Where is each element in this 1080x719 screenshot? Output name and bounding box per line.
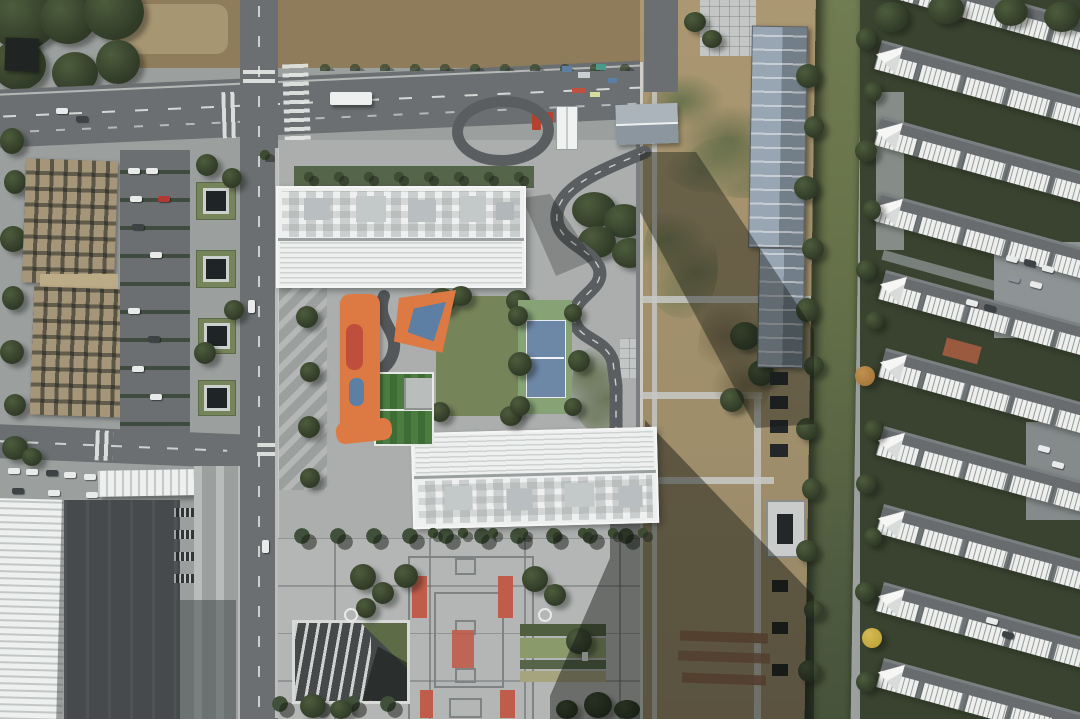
main-road-west-vertical xyxy=(240,0,278,719)
tree xyxy=(222,168,242,188)
bank-tree xyxy=(796,298,818,322)
white-hall-roof xyxy=(0,498,68,719)
gatehouse-roof xyxy=(615,103,678,145)
car xyxy=(56,108,68,114)
construction-debris xyxy=(596,64,606,70)
statue-white xyxy=(582,652,588,661)
car xyxy=(128,168,140,174)
tree xyxy=(522,566,548,592)
bank-tree xyxy=(796,64,820,88)
car xyxy=(48,490,60,496)
wall-opening xyxy=(770,396,788,409)
tree xyxy=(566,628,592,654)
rooftop-unit xyxy=(444,486,473,511)
playground-red-patch xyxy=(346,324,363,370)
tree xyxy=(578,226,616,258)
bus-shelter xyxy=(330,92,372,105)
car xyxy=(130,196,142,202)
construction-debris xyxy=(578,72,590,78)
bank-bush-orange xyxy=(855,366,875,386)
wall-opening xyxy=(770,444,788,457)
bank-tree xyxy=(794,176,818,200)
bank-tree xyxy=(798,660,820,682)
tree xyxy=(556,700,578,719)
south-school-building xyxy=(411,427,659,529)
construction-debris xyxy=(572,88,586,93)
bank-tree xyxy=(863,200,881,220)
tree xyxy=(510,396,530,416)
plaza-pattern-square xyxy=(455,558,476,575)
tree xyxy=(300,468,320,488)
tree xyxy=(356,598,376,618)
tree xyxy=(96,40,140,84)
bank-tree xyxy=(796,540,818,562)
skylight-pit xyxy=(204,385,230,411)
crosswalk xyxy=(95,430,114,461)
rooftop-unit xyxy=(304,198,330,220)
tree xyxy=(300,694,326,718)
bank-tree xyxy=(864,528,882,546)
tree xyxy=(584,692,612,718)
wall-opening xyxy=(770,372,788,385)
plaza-red-band xyxy=(498,576,513,618)
tree xyxy=(1044,2,1080,32)
rooftop-unit xyxy=(408,200,436,222)
tree xyxy=(2,286,24,310)
tree xyxy=(730,322,760,350)
tennis-net-line xyxy=(526,357,564,359)
louvered-terrace-zone xyxy=(415,431,654,475)
north-school-building xyxy=(276,186,526,288)
bank-tree xyxy=(864,82,882,102)
tree xyxy=(614,700,640,719)
concrete-path-vertical xyxy=(754,396,761,719)
bank-tree xyxy=(804,356,824,376)
bank-tree xyxy=(802,478,822,500)
demolished-building-south-wing xyxy=(30,286,128,417)
tree xyxy=(372,582,394,604)
plaza-pattern-square xyxy=(449,698,482,718)
bank-tree xyxy=(865,312,883,330)
car xyxy=(146,168,158,174)
skylight-pit xyxy=(203,256,229,282)
tree xyxy=(720,388,744,412)
tree xyxy=(564,304,582,322)
tree xyxy=(196,154,218,176)
bank-tree xyxy=(802,238,824,260)
road-stub-north xyxy=(644,0,678,92)
lane-dashes-vertical xyxy=(258,6,260,713)
box-pit xyxy=(777,514,793,544)
tree xyxy=(224,300,244,320)
ridge-line xyxy=(616,122,678,126)
wall-opening xyxy=(770,420,788,433)
tree xyxy=(0,340,24,364)
street-shrub-row xyxy=(310,58,640,71)
demolished-building-north-wing xyxy=(22,158,118,285)
car xyxy=(8,468,20,474)
wall-opening xyxy=(772,622,788,634)
plaza-red-center xyxy=(452,630,474,668)
car xyxy=(86,492,98,498)
plaza-lamp-ring xyxy=(344,608,358,622)
tree xyxy=(508,352,532,376)
plaza-garden-strips xyxy=(520,624,606,682)
tree xyxy=(394,564,418,588)
tent-ridge xyxy=(566,107,568,149)
crosswalk xyxy=(221,92,239,139)
north-hedge xyxy=(294,166,534,188)
west-parking-lot xyxy=(120,150,190,450)
bank-tree xyxy=(855,582,875,602)
construction-wall xyxy=(640,62,643,719)
car xyxy=(76,116,88,122)
plaza-lamp-ring xyxy=(538,608,552,622)
tree-planter xyxy=(196,250,236,288)
tree xyxy=(544,584,566,606)
canal-shed-north xyxy=(748,26,808,249)
hedge-strip xyxy=(520,660,606,669)
tree xyxy=(296,306,318,328)
tree-planter xyxy=(198,380,236,416)
bank-bush-yellow xyxy=(862,628,882,648)
construction-tent xyxy=(556,106,578,150)
construction-debris xyxy=(608,78,617,83)
car xyxy=(150,394,162,400)
car xyxy=(150,252,162,258)
rooftop-unit xyxy=(618,485,643,508)
tree xyxy=(4,394,26,416)
bank-tree xyxy=(856,260,876,280)
tree xyxy=(22,448,42,466)
rooftop-unit xyxy=(496,202,514,220)
bank-tree xyxy=(856,474,876,494)
dark-service-yard xyxy=(64,500,180,719)
dry-lawn-strip xyxy=(520,671,606,682)
tree xyxy=(508,306,528,326)
car-on-road xyxy=(248,300,255,313)
bank-tree xyxy=(856,28,876,50)
tree xyxy=(0,128,24,154)
skylight-pit xyxy=(203,188,229,214)
car xyxy=(132,366,144,372)
tree xyxy=(564,398,582,416)
car xyxy=(64,472,76,478)
tree xyxy=(350,564,376,590)
car xyxy=(12,488,24,494)
playground-blue-patch xyxy=(349,378,364,406)
bank-tree xyxy=(864,420,882,440)
rooftop-unit xyxy=(564,482,595,507)
tree xyxy=(194,342,216,364)
lawn-strip xyxy=(520,638,606,658)
construction-debris xyxy=(562,66,572,72)
car xyxy=(132,224,144,230)
plaza-pattern-square xyxy=(455,668,476,683)
entrance-canopy xyxy=(98,469,194,497)
plaza-red-band xyxy=(500,690,515,718)
rooftop-unit xyxy=(506,488,533,511)
car-red xyxy=(158,196,170,202)
shed-ridges xyxy=(749,27,807,248)
car xyxy=(46,470,58,476)
black-roof-shed xyxy=(4,37,38,71)
tree xyxy=(568,350,590,372)
bank-tree xyxy=(804,116,824,138)
tree xyxy=(298,416,320,438)
tree-row-south-building xyxy=(418,522,654,548)
car xyxy=(148,336,160,342)
plaza-red-band xyxy=(420,690,433,718)
wall-opening xyxy=(772,664,788,676)
wall-opening xyxy=(772,580,788,592)
rooftop-unit xyxy=(460,196,486,222)
pitch-corner-roof xyxy=(404,378,432,410)
louvered-terrace-zone xyxy=(280,242,522,284)
roof-divider xyxy=(278,238,524,241)
shrub xyxy=(684,12,706,32)
construction-debris xyxy=(590,92,600,97)
tree xyxy=(330,700,352,719)
rooftop-unit xyxy=(356,196,386,222)
orange-playground-strip xyxy=(340,294,380,436)
bank-tree xyxy=(856,672,876,692)
car xyxy=(84,474,96,480)
walkway-dark-lane xyxy=(176,600,236,719)
tree xyxy=(300,362,320,382)
hedge-strip xyxy=(520,624,606,636)
car-on-road xyxy=(262,540,269,553)
bank-tree xyxy=(796,418,818,440)
bank-tree xyxy=(804,600,824,620)
bank-tree xyxy=(855,140,877,162)
tree xyxy=(4,170,26,194)
shrub xyxy=(702,30,722,48)
tree xyxy=(874,2,908,32)
aerial-photo xyxy=(0,0,1080,719)
tennis-court-blue xyxy=(526,320,566,398)
car xyxy=(128,308,140,314)
crosswalk xyxy=(243,70,275,85)
car xyxy=(26,469,38,475)
